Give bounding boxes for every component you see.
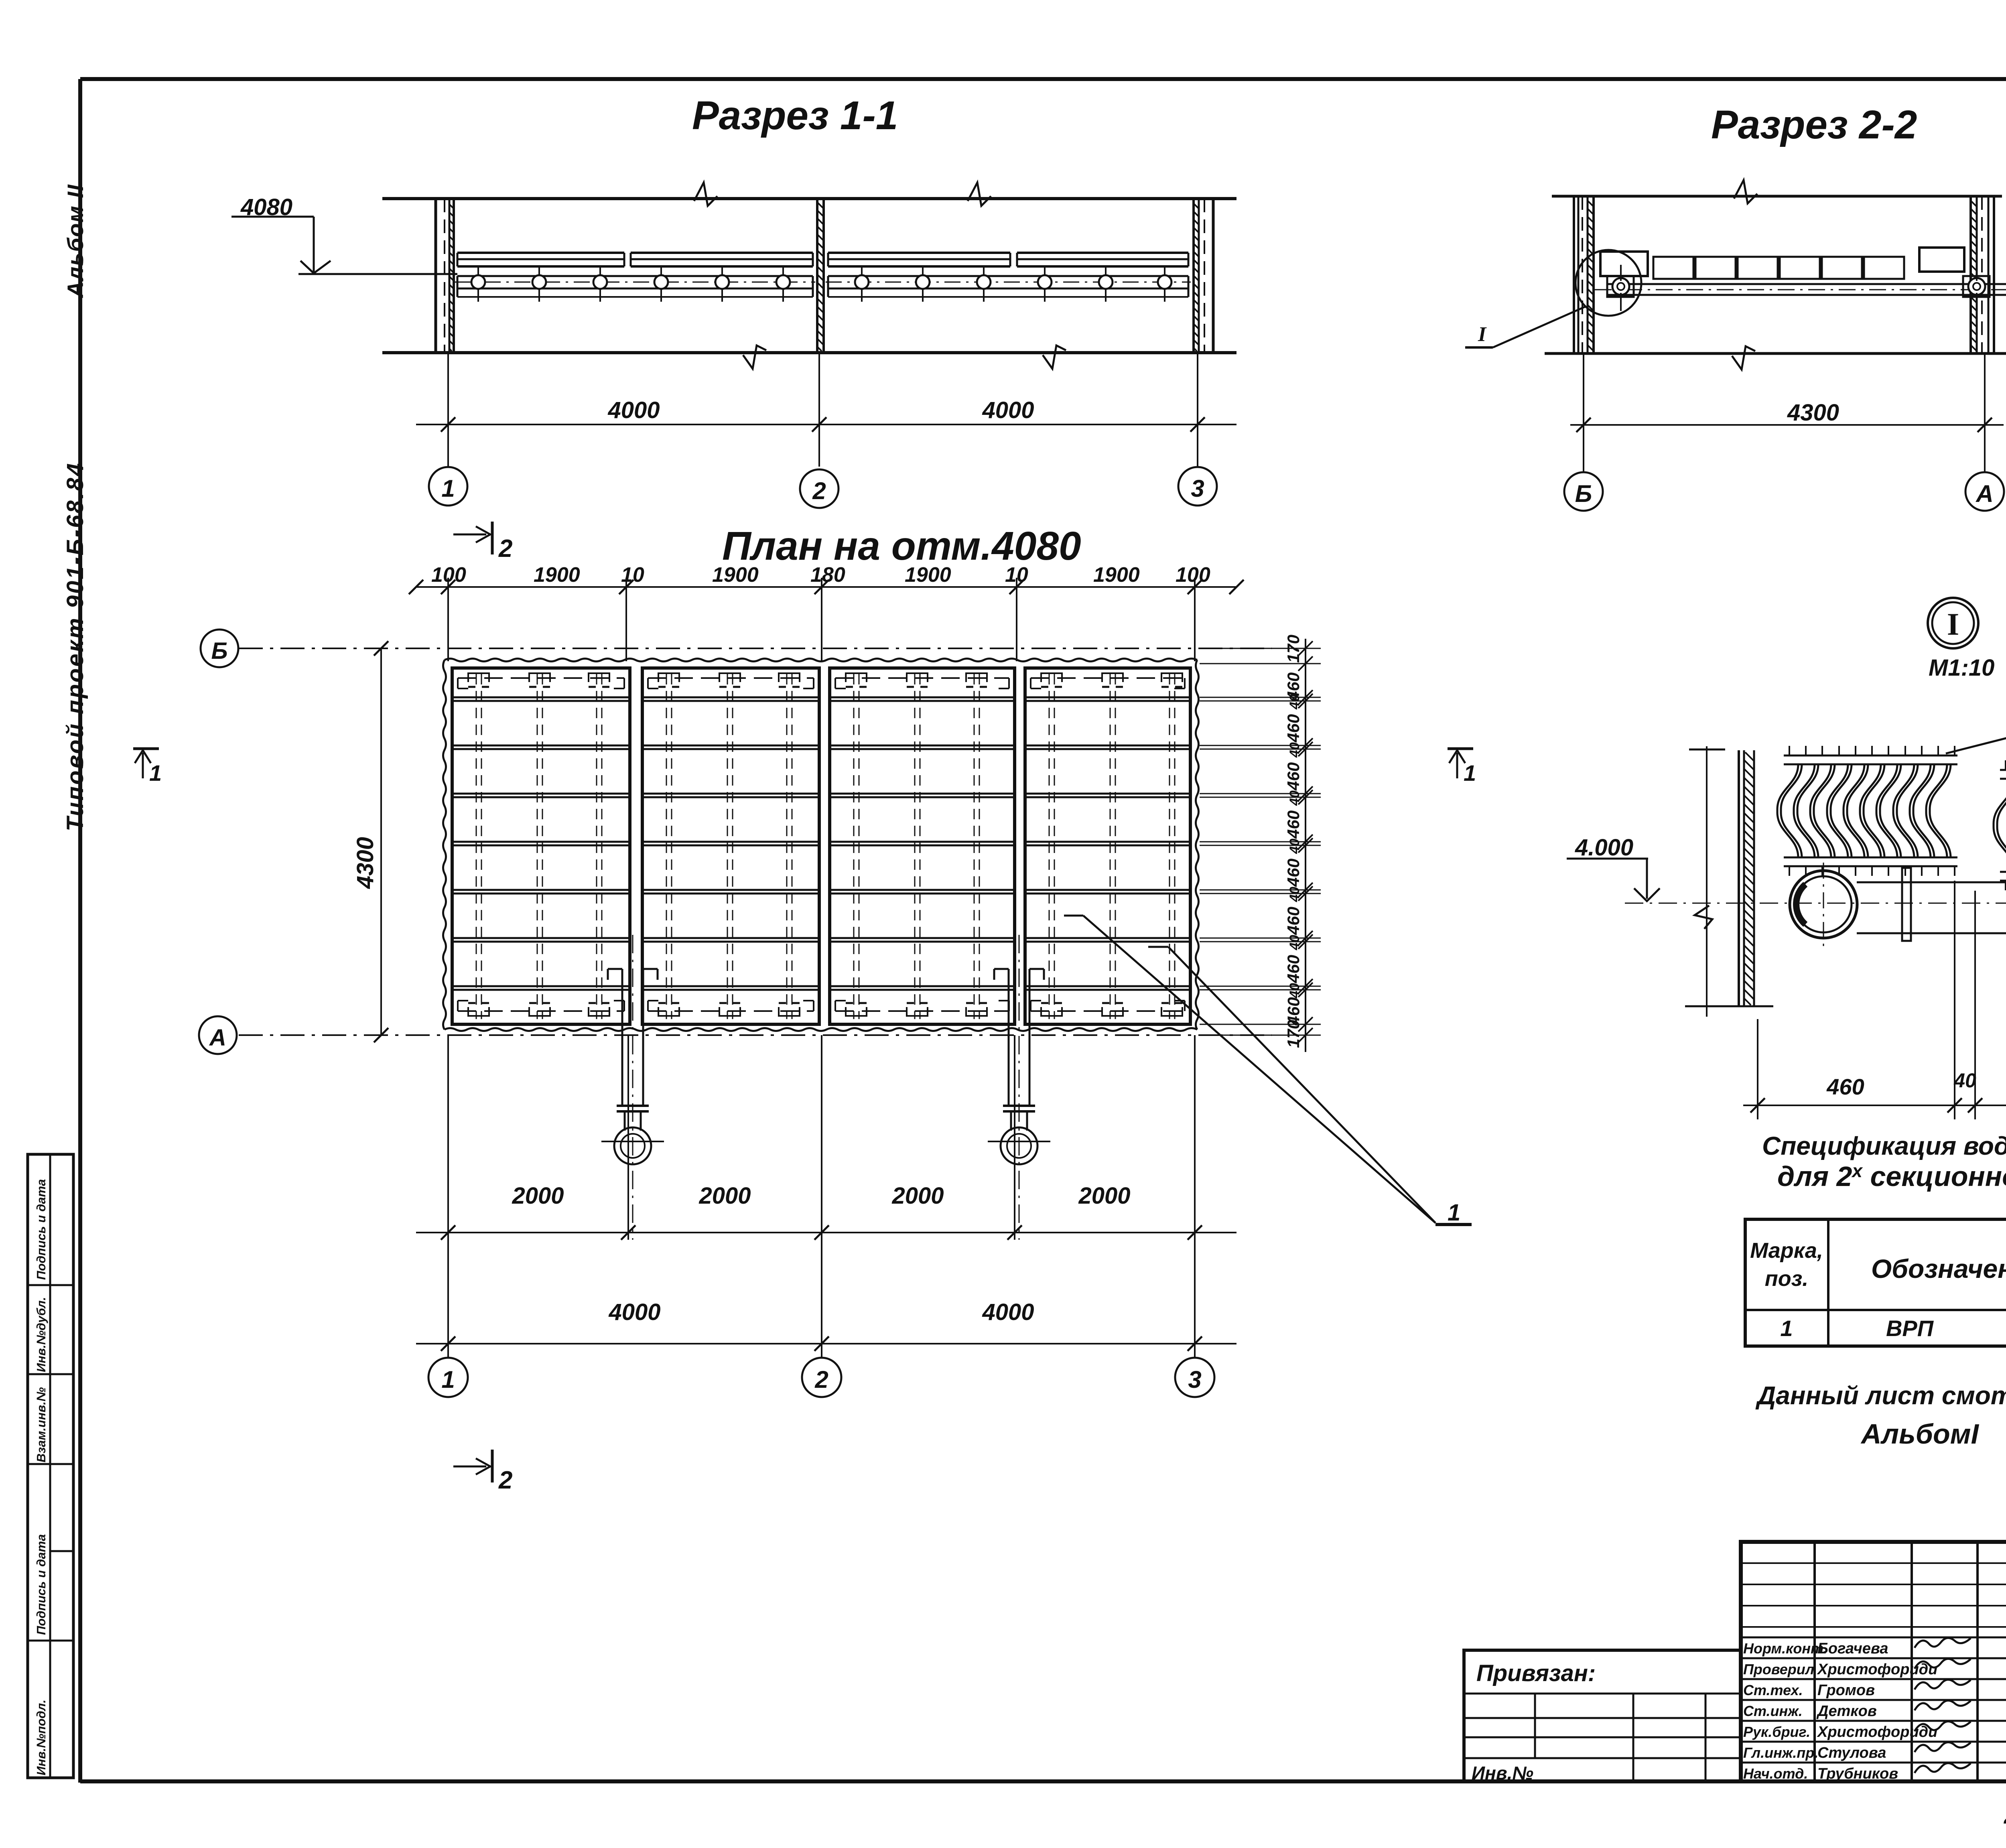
svg-text:Привязан:: Привязан:	[1476, 1660, 1596, 1686]
svg-text:Данный лист смотрите со: Данный лист смотрите совместно с листом …	[1755, 1381, 2006, 1410]
svg-text:Гл.инж.пр.: Гл.инж.пр.	[1743, 1744, 1818, 1761]
svg-text:М1:10: М1:10	[1929, 655, 1994, 681]
svg-text:Нач.отд.: Нач.отд.	[1743, 1765, 1808, 1782]
svg-text:4000: 4000	[982, 1299, 1034, 1325]
svg-text:Подпись и дата: Подпись и дата	[34, 1179, 48, 1280]
svg-text:Стулова: Стулова	[1817, 1744, 1886, 1761]
svg-text:Рук.бриг.: Рук.бриг.	[1743, 1724, 1810, 1740]
svg-text:Ст.инж.: Ст.инж.	[1743, 1703, 1803, 1719]
svg-text:Альбом II: Альбом II	[63, 184, 88, 299]
svg-text:Проверил: Проверил	[1743, 1661, 1814, 1677]
svg-text:Трубников: Трубников	[1817, 1765, 1898, 1782]
svg-text:460: 460	[1284, 714, 1303, 743]
svg-text:А: А	[1975, 480, 1993, 507]
svg-text:2000: 2000	[891, 1183, 944, 1209]
svg-text:40: 40	[1287, 694, 1302, 710]
svg-text:Типовой проект 901-Б-68.84: Типовой проект 901-Б-68.84	[62, 462, 88, 831]
svg-text:Норм.конт.: Норм.конт.	[1743, 1640, 1827, 1657]
svg-text:1900: 1900	[905, 563, 951, 587]
svg-text:А: А	[209, 1025, 226, 1051]
svg-text:20216-02: 20216-02	[2004, 1801, 2006, 1829]
svg-text:План на отм.4080: План на отм.4080	[722, 524, 1081, 569]
svg-text:для 2х секционной градирни.: для 2х секционной градирни.	[1777, 1160, 2006, 1192]
svg-text:4000: 4000	[607, 397, 660, 423]
svg-text:Детков: Детков	[1816, 1703, 1877, 1720]
svg-text:460: 460	[1284, 859, 1303, 887]
svg-text:460: 460	[1826, 1074, 1864, 1099]
svg-text:Обозначение: Обозначение	[1871, 1254, 2006, 1283]
svg-text:1: 1	[1780, 1316, 1793, 1341]
svg-text:2: 2	[812, 477, 826, 504]
svg-text:Б: Б	[211, 638, 227, 664]
svg-text:3: 3	[1188, 1366, 1201, 1393]
svg-text:Инв.№подл.: Инв.№подл.	[34, 1700, 48, 1775]
svg-text:4000: 4000	[608, 1299, 660, 1325]
svg-text:Разрез 2-2: Разрез 2-2	[1711, 102, 1917, 147]
svg-text:4300: 4300	[352, 837, 378, 889]
svg-text:40: 40	[1953, 1069, 1976, 1092]
svg-text:40: 40	[1287, 935, 1302, 950]
svg-text:I: I	[1947, 607, 1959, 642]
svg-text:поз.: поз.	[1765, 1267, 1809, 1291]
svg-text:2000: 2000	[512, 1183, 564, 1209]
svg-text:1: 1	[441, 1366, 455, 1393]
svg-text:1900: 1900	[712, 563, 759, 587]
svg-text:2: 2	[498, 535, 512, 563]
svg-text:4300: 4300	[1787, 400, 1839, 426]
svg-text:40: 40	[1287, 742, 1302, 758]
svg-text:460: 460	[1284, 955, 1303, 983]
svg-text:Взам.инв.№: Взам.инв.№	[34, 1387, 48, 1462]
svg-text:Б: Б	[1575, 480, 1592, 507]
svg-text:3: 3	[1191, 475, 1204, 502]
svg-text:1: 1	[1448, 1200, 1460, 1226]
svg-text:1900: 1900	[534, 563, 580, 587]
svg-text:Инв.№дубл.: Инв.№дубл.	[34, 1297, 48, 1372]
svg-text:460: 460	[1284, 810, 1303, 839]
svg-text:2000: 2000	[698, 1183, 751, 1209]
svg-text:ВРП: ВРП	[1886, 1316, 1934, 1341]
svg-text:Разрез 1-1: Разрез 1-1	[692, 93, 898, 138]
svg-text:Спецификация водоуловительных: Спецификация водоуловительных решеток из…	[1762, 1131, 2006, 1160]
svg-text:Инв.№: Инв.№	[1472, 1763, 1533, 1783]
svg-text:2000: 2000	[1078, 1183, 1130, 1209]
svg-text:Ст.тех.: Ст.тех.	[1743, 1682, 1803, 1698]
svg-text:Марка,: Марка,	[1750, 1239, 1823, 1263]
svg-text:10: 10	[621, 563, 644, 587]
svg-text:4000: 4000	[982, 397, 1034, 423]
svg-text:I: I	[1478, 323, 1487, 346]
svg-text:460: 460	[1284, 762, 1303, 791]
svg-text:40: 40	[1287, 887, 1302, 902]
svg-text:2: 2	[498, 1466, 512, 1494]
svg-text:1: 1	[149, 760, 162, 786]
svg-text:1: 1	[1464, 760, 1476, 786]
svg-text:460: 460	[1284, 907, 1303, 935]
svg-text:40: 40	[1287, 839, 1302, 854]
svg-text:1900: 1900	[1093, 563, 1140, 587]
svg-text:180: 180	[810, 563, 845, 587]
svg-text:Богачева: Богачева	[1817, 1640, 1888, 1657]
svg-text:40: 40	[1287, 983, 1302, 999]
svg-text:1: 1	[441, 475, 455, 502]
svg-text:АльбомI: АльбомI	[1860, 1418, 1980, 1450]
svg-text:170: 170	[1284, 635, 1303, 663]
svg-text:40: 40	[1287, 790, 1302, 806]
svg-text:170: 170	[1284, 1020, 1303, 1048]
svg-text:Подпись и дата: Подпись и дата	[34, 1534, 48, 1635]
svg-text:Громов: Громов	[1817, 1682, 1875, 1699]
svg-text:100: 100	[1176, 563, 1210, 587]
svg-text:2: 2	[814, 1366, 828, 1393]
svg-text:4.000: 4.000	[1575, 835, 1633, 861]
